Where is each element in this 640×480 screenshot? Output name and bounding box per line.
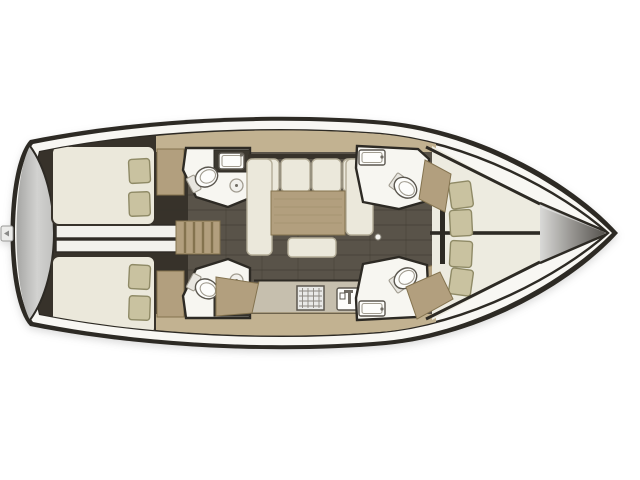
pillow [129, 296, 151, 321]
swim-ladder-notch [1, 226, 13, 241]
quarter-berth-access [56, 225, 178, 252]
pillow [128, 158, 150, 183]
floor-fitting [375, 234, 381, 240]
forward-head-port [356, 146, 429, 209]
pillow [448, 181, 473, 210]
aft-locker-port [157, 149, 184, 195]
pillow [449, 209, 472, 236]
pillow [128, 264, 150, 289]
sofa-seat-left [247, 159, 272, 255]
faucet [380, 307, 383, 310]
pillow [448, 268, 473, 297]
yacht-floorplan-image [0, 0, 640, 480]
saloon-table [271, 191, 345, 235]
floorplan-svg [0, 0, 640, 480]
pillow [129, 192, 151, 217]
sofa-back-cushion [281, 159, 310, 192]
aft-locker-starboard [157, 271, 184, 317]
faucet [240, 153, 243, 156]
aft-cabin-port [52, 146, 155, 225]
corridor-sill [440, 209, 445, 264]
sofa-back-cushion [312, 159, 341, 192]
ottoman [288, 238, 336, 257]
vberth-divider [430, 231, 540, 235]
companionway-steps [176, 221, 220, 254]
pillow [449, 240, 472, 267]
stove [297, 286, 324, 310]
faucet [380, 155, 383, 158]
